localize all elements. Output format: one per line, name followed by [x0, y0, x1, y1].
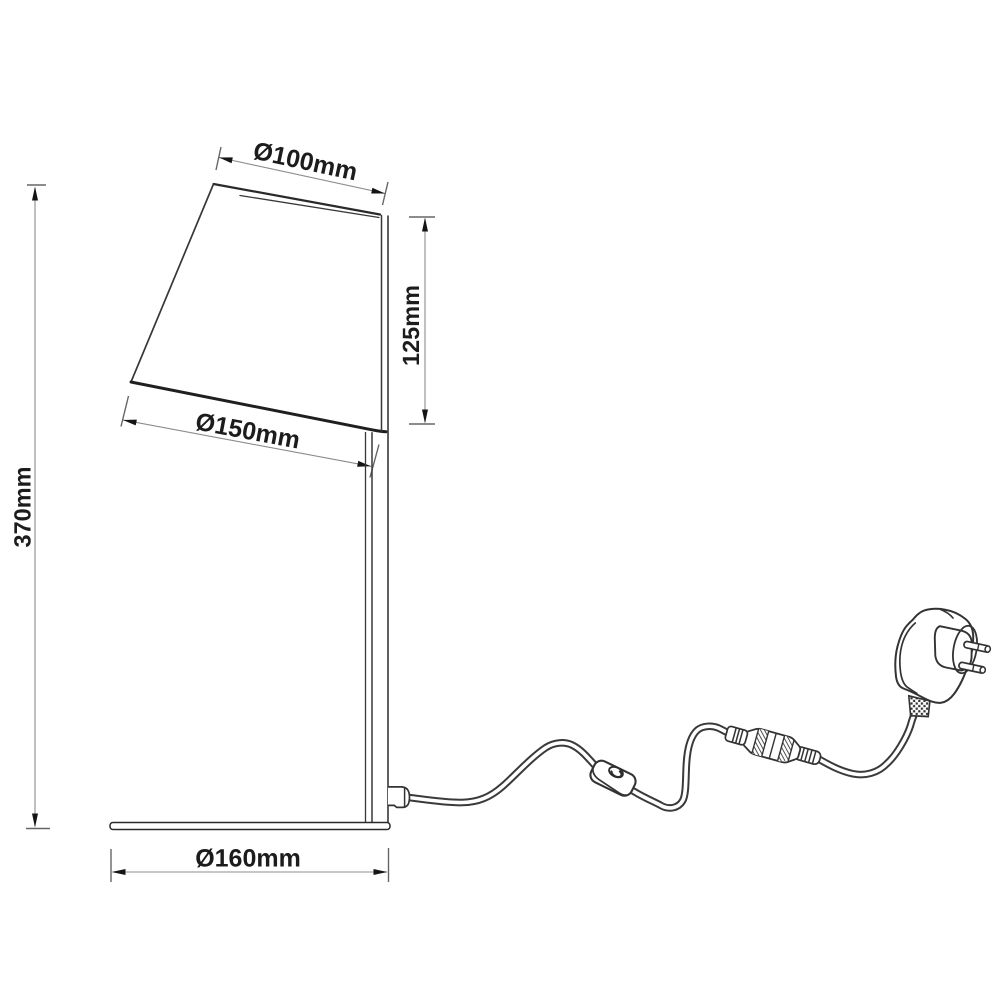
svg-text:Ø150mm: Ø150mm — [193, 408, 302, 455]
svg-text:370mm: 370mm — [10, 467, 36, 548]
svg-text:125mm: 125mm — [398, 285, 424, 366]
svg-text:Ø100mm: Ø100mm — [251, 137, 360, 187]
svg-text:Ø160mm: Ø160mm — [195, 845, 301, 873]
